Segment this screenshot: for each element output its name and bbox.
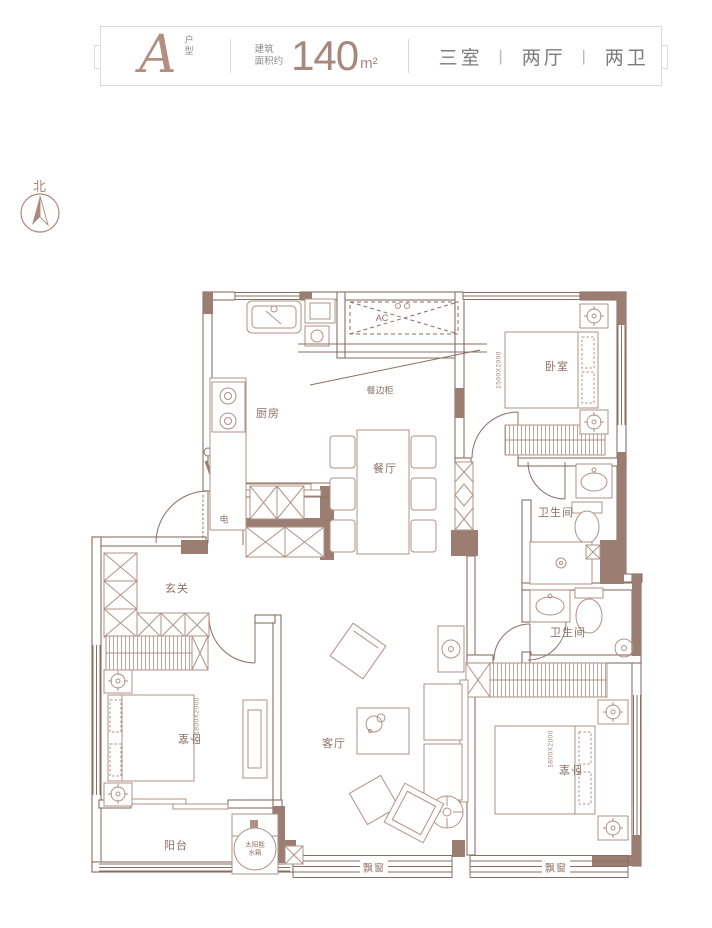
- shower: [530, 542, 592, 584]
- bathroom-lower-fixtures: [530, 588, 633, 657]
- armchair: [330, 623, 386, 679]
- bay-window-center: [293, 856, 452, 878]
- bedroom-top-window: [463, 292, 580, 301]
- corridor-cabinet: [455, 462, 473, 530]
- toilet: [572, 502, 602, 543]
- ac-closet: [350, 302, 458, 334]
- sink: [576, 464, 612, 498]
- dining-table-set: [330, 430, 436, 554]
- foyer-cabinets: [104, 553, 209, 637]
- sink: [530, 590, 570, 622]
- coffee-table: [357, 708, 409, 754]
- kitchen-sink: [247, 301, 301, 333]
- balcony-sliding-door: [131, 799, 228, 809]
- bed-bottom-right: [495, 700, 628, 840]
- floorplan-page: A 户型 建筑 面积约 140 m² 三室 丨 两厅 丨 两卫 北: [0, 0, 712, 928]
- wardrobe-bedroom-left: [106, 636, 208, 670]
- sofa: [424, 680, 468, 802]
- bedroom-left-window: [93, 645, 101, 795]
- kitchen-window: [235, 292, 300, 301]
- side-table: [438, 626, 464, 672]
- desk: [243, 700, 267, 778]
- bedroom-tr-window: [618, 325, 626, 425]
- bedroom-left-door: [209, 617, 255, 663]
- water-heater: [615, 639, 633, 657]
- stove: [212, 382, 245, 432]
- bed-left: [104, 670, 267, 806]
- bed-top-right: [505, 304, 608, 434]
- bathroom-lower-door: [528, 622, 566, 660]
- wardrobe-bedroom-br: [466, 663, 607, 697]
- bathroom-upper-fixtures: [530, 464, 612, 584]
- kitchen-counter-appliance: [305, 299, 335, 346]
- toilet: [575, 588, 603, 633]
- bedroom-br-window: [633, 695, 641, 835]
- solar-water-tank: [234, 828, 276, 870]
- entrance-door: [156, 448, 217, 543]
- living-furniture: [330, 623, 468, 843]
- bathroom-upper-door: [528, 462, 565, 499]
- floor-plan: [0, 0, 712, 928]
